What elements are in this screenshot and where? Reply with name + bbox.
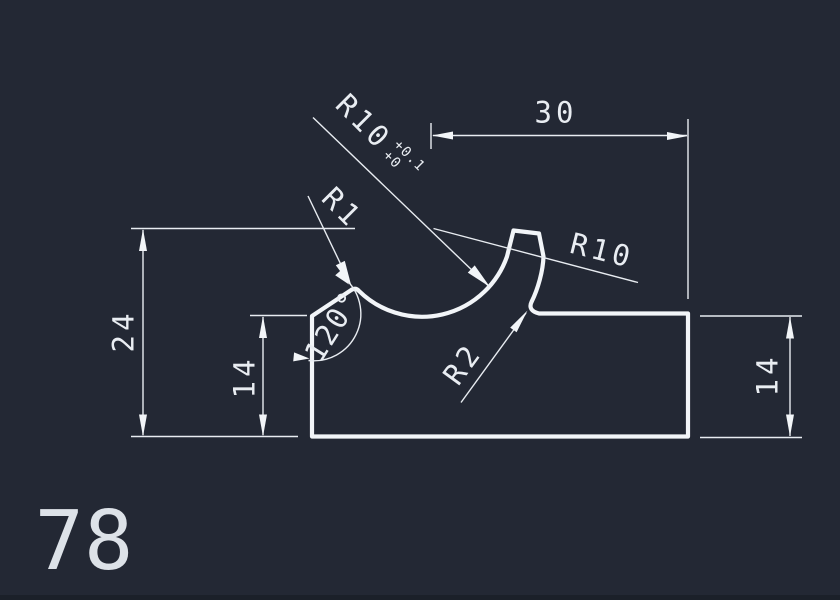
dim-label-14-left: 14: [231, 356, 260, 399]
arrowhead-14-left-top: [259, 316, 267, 338]
dim-label-14-right: 14: [754, 354, 783, 397]
arrowhead-24-top: [139, 229, 147, 251]
arrowhead-30-left: [432, 132, 453, 140]
part-number-label: 78: [35, 501, 134, 583]
bottom-bar: [0, 595, 840, 600]
arrowhead-14-right-bottom: [786, 415, 794, 437]
dim-label-24: 24: [110, 310, 139, 353]
arrowhead-14-right-top: [786, 317, 794, 339]
arrowhead-r2: [510, 311, 527, 333]
dim-label-30: 30: [535, 99, 578, 128]
arrowhead-30-right: [667, 132, 688, 140]
arrowhead-14-left-bottom: [259, 415, 267, 437]
arrowhead-24-bottom: [139, 415, 147, 437]
cad-canvas: 30 24 14 14 R10 +0.1 +0 R1 R10 R2 120° 7…: [0, 0, 840, 600]
